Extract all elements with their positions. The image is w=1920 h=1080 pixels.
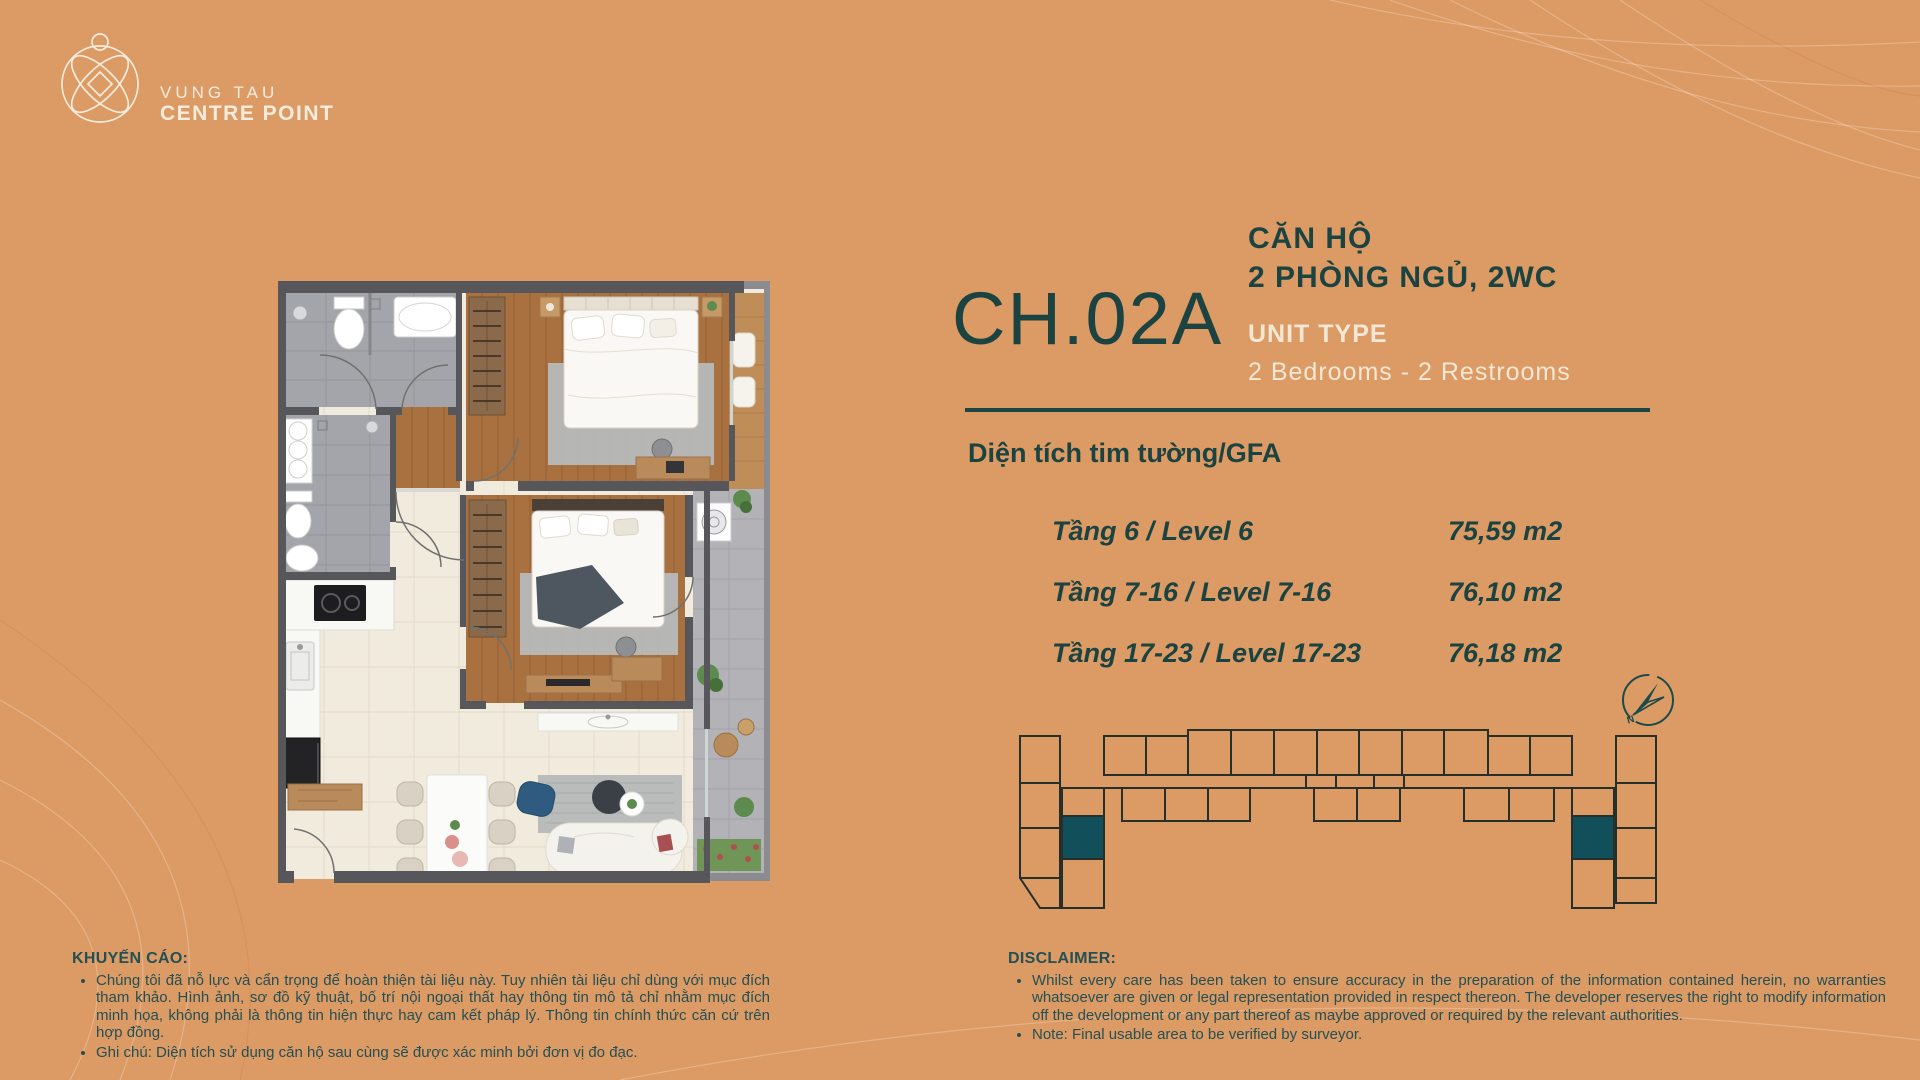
bathroom-1 — [282, 293, 460, 407]
gfa-row-value: 76,18 m2 — [1448, 638, 1562, 669]
gfa-row-value: 76,10 m2 — [1448, 577, 1562, 608]
bathroom-2 — [282, 415, 390, 580]
unit-code: CH.02A — [952, 276, 1223, 361]
unit-bedrooms-vi: 2 PHÒNG NGỦ, 2WC — [1248, 261, 1557, 295]
gfa-row-label: Tầng 7-16 / Level 7-16 — [1052, 577, 1331, 608]
disclaimer-bullet: Note: Final usable area to be verified b… — [1032, 1026, 1886, 1044]
gfa-heading: Diện tích tim tường/GFA — [968, 438, 1281, 469]
logo-flower-icon — [50, 28, 150, 132]
disclaimer-block: DISCLAIMER: Whilst every care has been t… — [1008, 950, 1886, 1046]
gfa-row-label: Tầng 6 / Level 6 — [1052, 516, 1253, 547]
brochure-page: { "logo": { "name_top": "VUNG TAU", "nam… — [0, 0, 1920, 1080]
highlighted-unit-right — [1572, 816, 1614, 859]
building-footprint — [1018, 726, 1658, 916]
gfa-row-value: 75,59 m2 — [1448, 516, 1562, 547]
logo-name-bottom: CENTRE POINT — [160, 102, 334, 126]
divider-line — [965, 408, 1650, 412]
unit-type-value: 2 Bedrooms - 2 Restrooms — [1248, 358, 1571, 387]
highlighted-unit-left — [1062, 816, 1104, 859]
master-bedroom — [466, 293, 729, 481]
advisory-bullet: Chúng tôi đã nỗ lực và cẩn trọng để hoàn… — [96, 972, 770, 1042]
logo-name-top: VUNG TAU — [160, 83, 278, 103]
advisory-block: KHUYẾN CÁO: Chúng tôi đã nỗ lực và cẩn t… — [72, 950, 770, 1063]
unit-category-vi: CĂN HỘ — [1248, 222, 1372, 256]
gfa-row-label: Tầng 17-23 / Level 17-23 — [1052, 638, 1361, 669]
compass-icon: N — [1618, 670, 1678, 730]
floor-plan — [274, 277, 770, 883]
svg-text:N: N — [1626, 714, 1636, 727]
vanity — [538, 713, 678, 731]
advisory-heading: KHUYẾN CÁO: — [72, 950, 770, 968]
disclaimer-bullet: Whilst every care has been taken to ensu… — [1032, 972, 1886, 1025]
entry-console — [288, 784, 362, 810]
disclaimer-heading: DISCLAIMER: — [1008, 950, 1886, 968]
advisory-bullet: Ghi chú: Diện tích sử dụng căn hộ sau cù… — [96, 1044, 770, 1062]
unit-type-label: UNIT TYPE — [1248, 320, 1388, 349]
bedroom-2 — [466, 495, 685, 703]
dining-set — [397, 775, 515, 882]
